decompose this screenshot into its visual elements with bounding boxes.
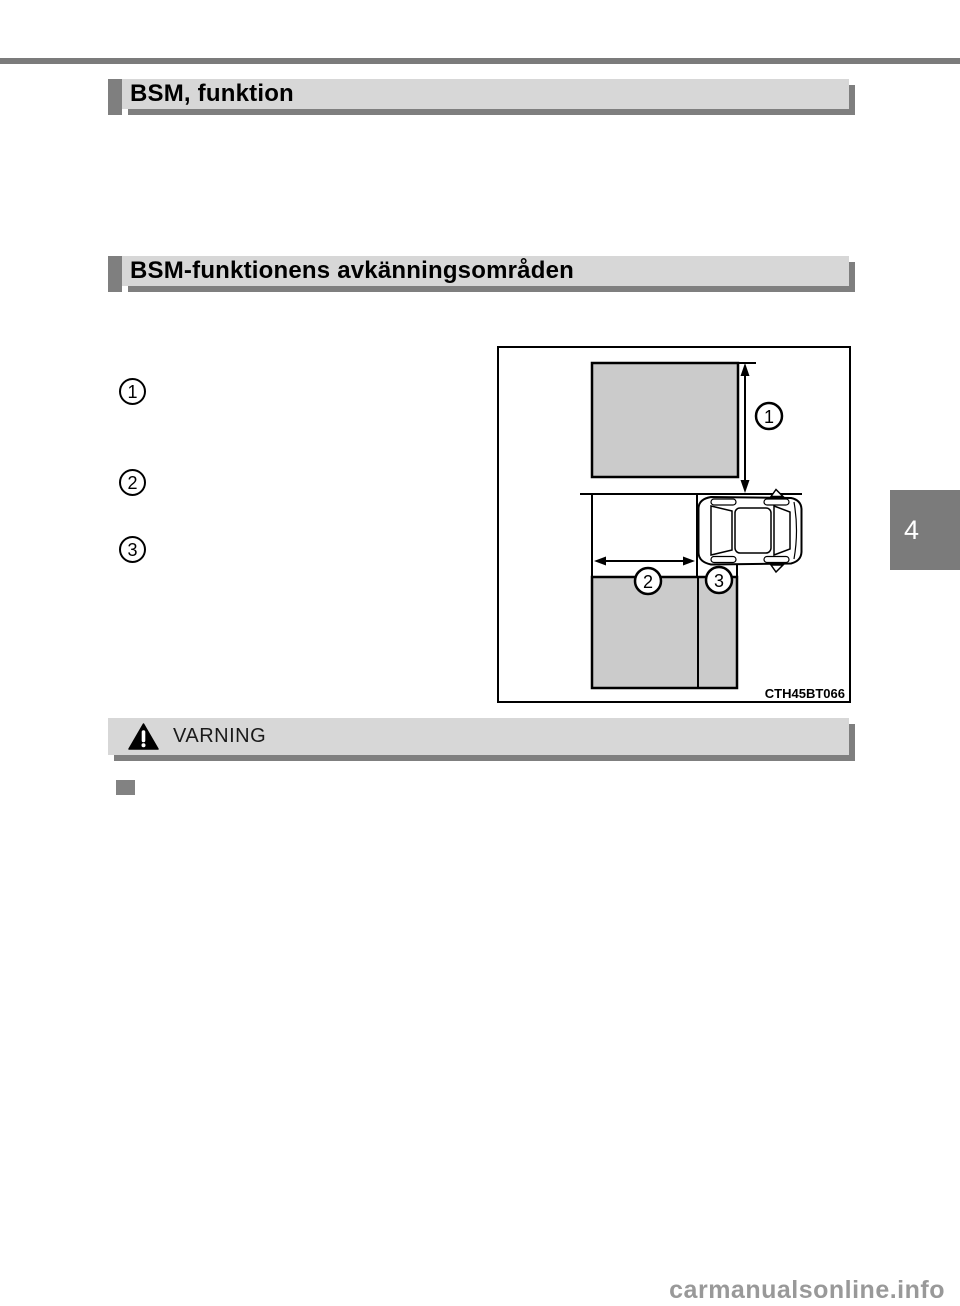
- header-accent-bar: [108, 256, 122, 292]
- svg-text:3: 3: [714, 571, 724, 591]
- header-accent-bar: [108, 79, 122, 115]
- warning-triangle-icon: [128, 723, 159, 750]
- watermark-text[interactable]: carmanualsonline.info: [669, 1276, 945, 1305]
- chapter-tab: 4: [890, 490, 960, 570]
- list-bullet-square: [116, 780, 135, 795]
- header-bar: BSM, funktion: [122, 79, 849, 109]
- dimension-arrow-2: [594, 557, 695, 566]
- list-marker-1-label: 1: [127, 383, 137, 401]
- list-marker-2: 2: [119, 469, 146, 496]
- top-horizontal-rule: [0, 58, 960, 64]
- diagram-figure: 1 2 3 CTH45BT066: [499, 348, 849, 701]
- list-marker-1: 1: [119, 378, 146, 405]
- section-title: BSM, funktion: [122, 80, 294, 108]
- side-mirror-icon: [771, 565, 783, 572]
- svg-text:2: 2: [643, 572, 653, 592]
- warning-header-bar: VARNING: [108, 718, 849, 755]
- diagram-callout-1: 1: [756, 403, 782, 429]
- diagram-callout-2: 2: [635, 568, 661, 594]
- svg-text:1: 1: [764, 407, 774, 427]
- list-marker-3-label: 3: [127, 541, 137, 559]
- zone-1-area-rect: [592, 363, 738, 477]
- diagram-callout-3: 3: [706, 567, 732, 593]
- chapter-number: 4: [890, 515, 919, 546]
- section-header-bsm-funktion: BSM, funktion: [108, 79, 855, 115]
- bsm-detection-area-diagram: 1 2 3 CTH45BT066: [497, 346, 851, 703]
- dimension-arrow-1: [741, 363, 750, 493]
- figure-code: CTH45BT066: [765, 686, 845, 701]
- list-marker-3: 3: [119, 536, 146, 563]
- section-header-detection-areas: BSM-funktionens avkänningsområden: [108, 256, 855, 292]
- section-title: BSM-funktionens avkänningsområden: [122, 257, 574, 285]
- car-top-view: [699, 490, 802, 573]
- list-marker-2-label: 2: [127, 474, 137, 492]
- manual-page: BSM, funktion BSM-funktionens avkännings…: [0, 0, 960, 1306]
- header-bar: BSM-funktionens avkänningsområden: [122, 256, 849, 286]
- warning-title: VARNING: [173, 725, 266, 748]
